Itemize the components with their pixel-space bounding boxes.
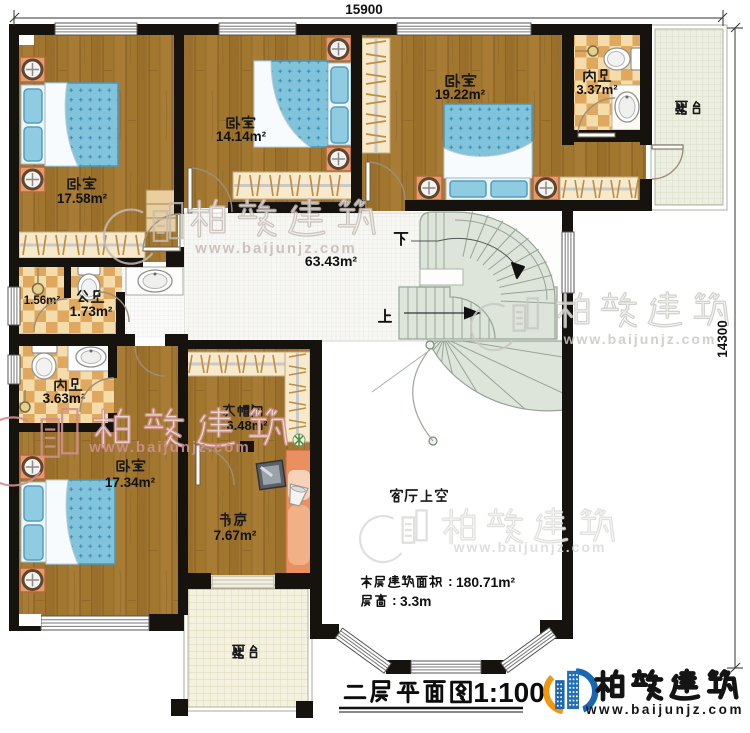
svg-text:www.baijunjz.com: www.baijunjz.com <box>585 702 744 717</box>
svg-text:7.67m²: 7.67m² <box>214 528 257 543</box>
svg-text:15900: 15900 <box>345 2 383 17</box>
svg-text:17.34m²: 17.34m² <box>105 475 156 490</box>
svg-text:www.baijunjz.com: www.baijunjz.com <box>563 331 717 347</box>
svg-text:1.73m²: 1.73m² <box>70 304 113 319</box>
svg-text:180.71m²: 180.71m² <box>456 575 515 590</box>
svg-text:3.63m²: 3.63m² <box>43 391 86 406</box>
svg-text:19.22m²: 19.22m² <box>435 87 486 102</box>
svg-text:14.14m²: 14.14m² <box>216 129 267 144</box>
svg-text:3.37m²: 3.37m² <box>576 82 618 97</box>
svg-text:17.58m²: 17.58m² <box>57 191 108 206</box>
svg-text::: : <box>448 573 453 589</box>
svg-text:14300: 14300 <box>715 320 730 358</box>
svg-text:3.3m: 3.3m <box>400 594 431 609</box>
svg-text:www.baijunjz.com: www.baijunjz.com <box>453 539 607 555</box>
svg-text:1:100: 1:100 <box>473 677 545 708</box>
svg-text:www.baijunjz.com: www.baijunjz.com <box>194 240 356 257</box>
svg-text:www.baijunjz.com: www.baijunjz.com <box>88 439 250 456</box>
svg-text::: : <box>392 592 397 608</box>
